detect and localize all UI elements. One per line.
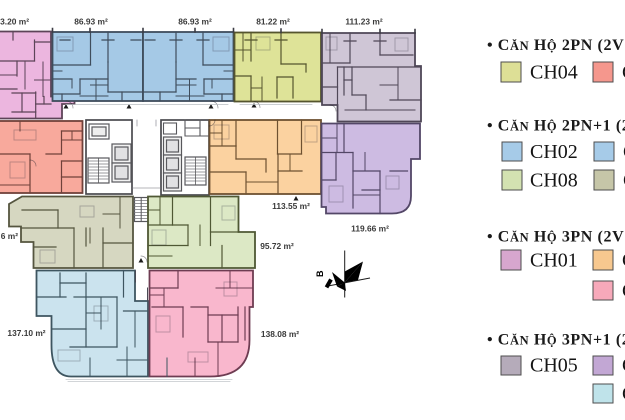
svg-text:81.22 m²: 81.22 m² [256,17,290,27]
svg-text:• CĂN HỘ 3PN+1 (2VS): • CĂN HỘ 3PN+1 (2VS) [487,332,625,349]
svg-text:119.66 m²: 119.66 m² [351,224,389,234]
svg-text:CH05: CH05 [530,355,578,377]
svg-text:• CĂN HỘ 3PN (2VS): • CĂN HỘ 3PN (2VS) [487,229,625,246]
svg-text:86.93 m²: 86.93 m² [178,17,212,27]
svg-text:95.72 m²: 95.72 m² [260,241,294,251]
svg-text:111.23 m²: 111.23 m² [345,17,382,27]
svg-text:CH01: CH01 [530,250,578,272]
svg-text:138.08 m²: 138.08 m² [261,329,299,339]
svg-text:CH02: CH02 [530,141,578,163]
svg-text:113.55 m²: 113.55 m² [272,201,310,211]
svg-text:86.93 m²: 86.93 m² [74,17,108,27]
svg-text:03.20 m²: 03.20 m² [0,17,29,27]
svg-text:6 m²: 6 m² [1,231,18,241]
svg-text:CH04: CH04 [530,62,578,84]
svg-text:B: B [315,270,325,277]
svg-text:• CĂN HỘ 2PN+1 (2VS): • CĂN HỘ 2PN+1 (2VS) [487,118,625,135]
svg-text:• CĂN HỘ 2PN (2VS): • CĂN HỘ 2PN (2VS) [487,37,625,54]
svg-text:137.10 m²: 137.10 m² [7,328,45,338]
svg-text:CH08: CH08 [530,170,578,192]
